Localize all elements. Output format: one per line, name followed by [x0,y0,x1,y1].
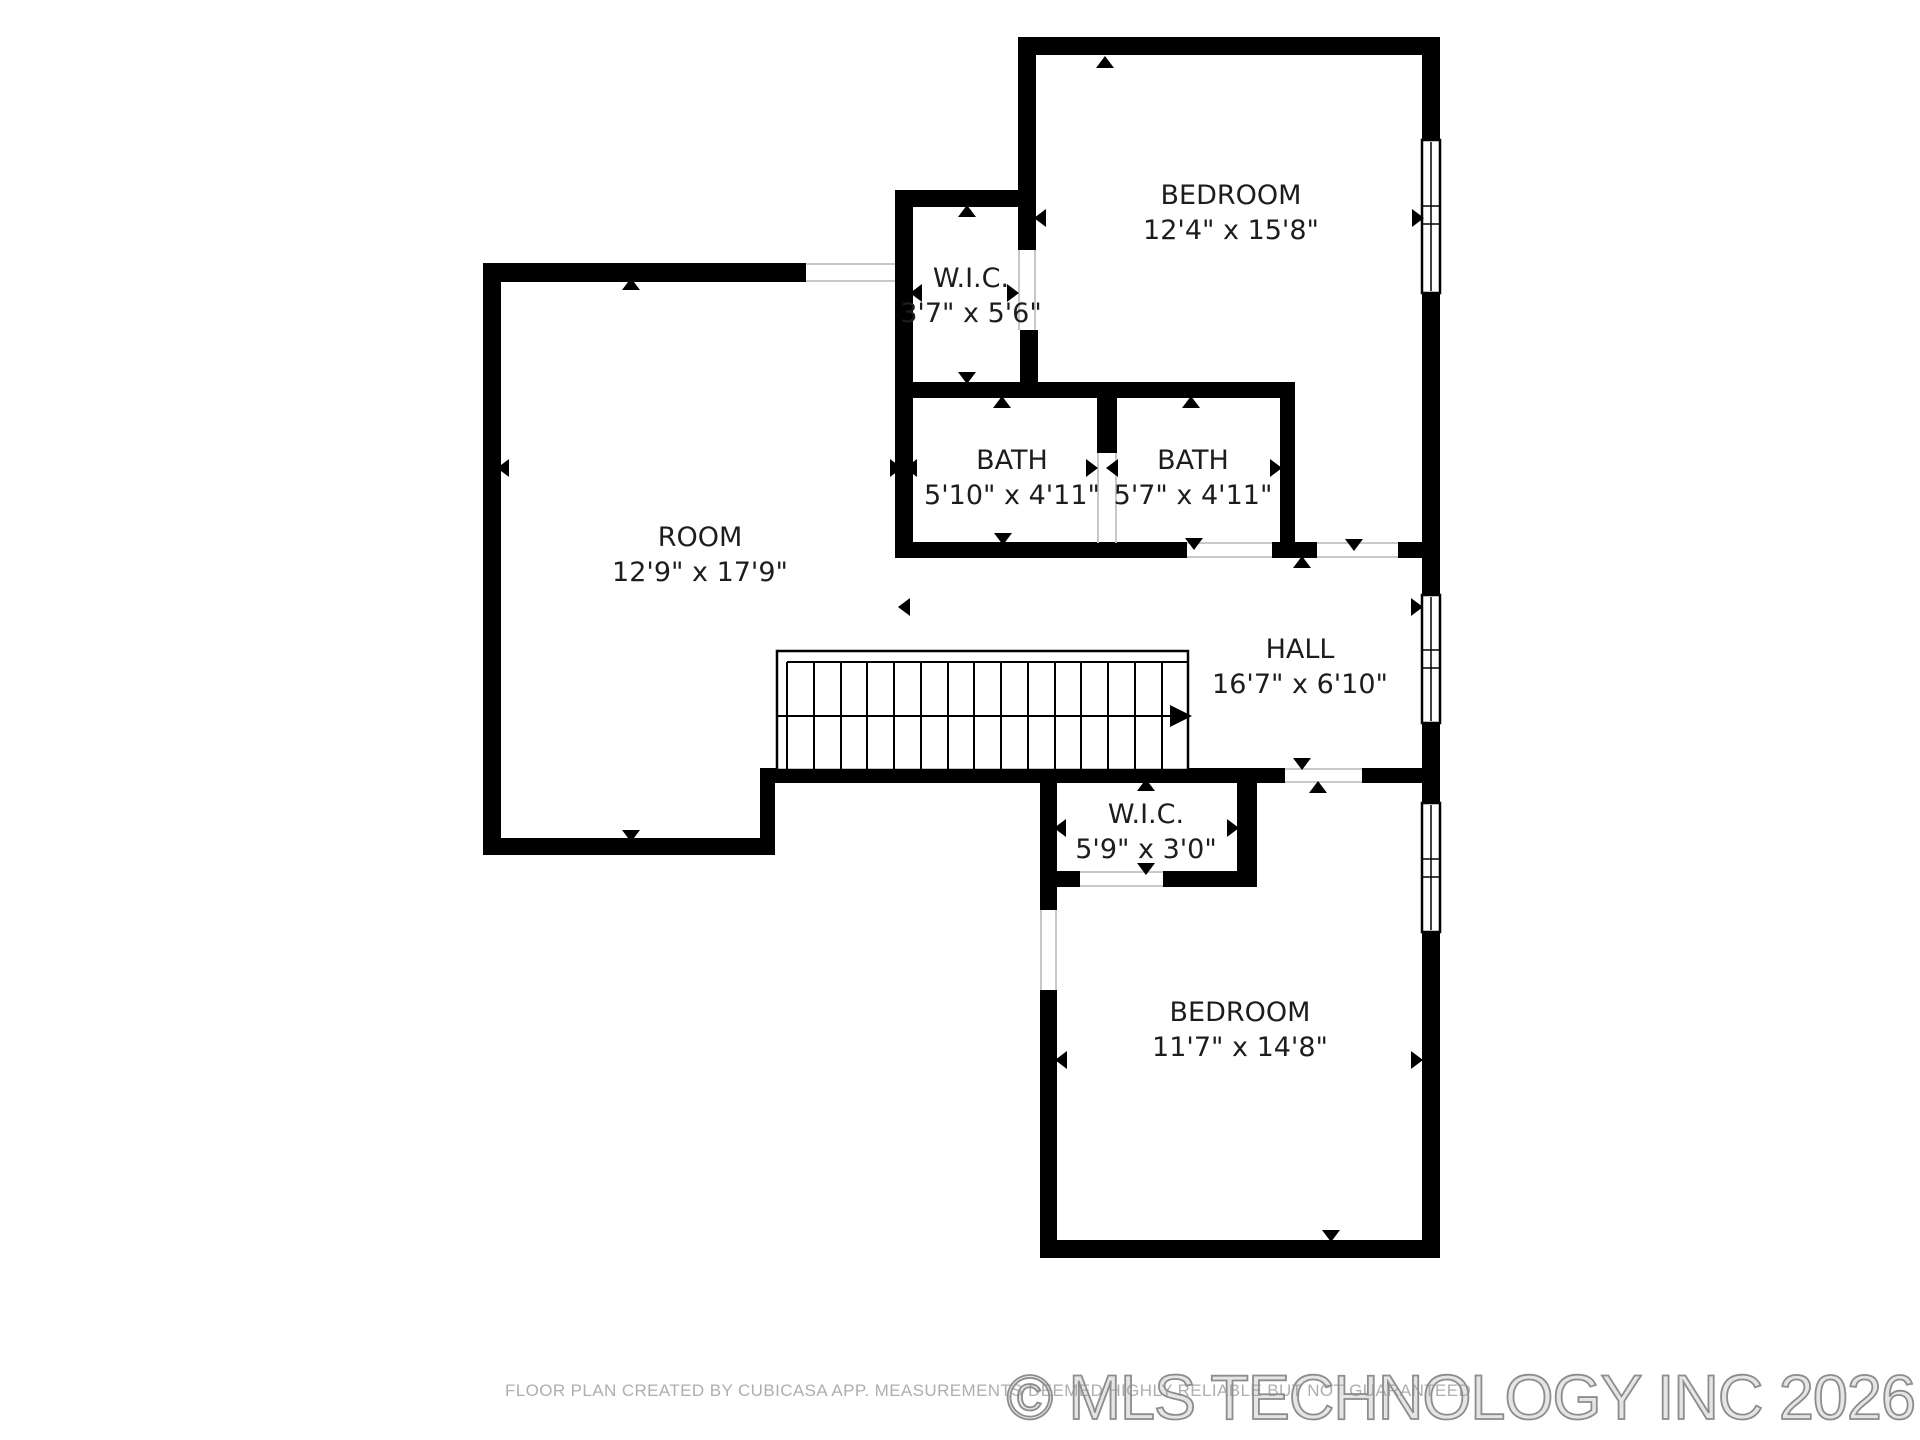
wall-wic-bottom-bottom-right [1163,871,1257,887]
room-name: HALL [1212,632,1388,667]
room-label-bedroom-bottom: BEDROOM 11'7" x 14'8" [1152,995,1328,1065]
door-openings [806,250,1398,990]
wall-room-bottom [483,838,775,855]
room-dims: 12'9" x 17'9" [612,555,788,590]
window-hall [1422,595,1440,723]
wall-bedroom-top-left-upper [1018,37,1036,250]
room-name: BATH [924,443,1100,478]
room-dims: 5'10" x 4'11" [924,478,1100,513]
room-dims: 12'4" x 15'8" [1143,213,1319,248]
room-label-wic-top: W.I.C. 3'7" x 5'6" [900,261,1042,331]
room-label-wic-bottom: W.I.C. 5'9" x 3'0" [1075,797,1217,867]
wall-bath-bottom-mid [1272,542,1317,558]
wall-bedroom-bottom-bottom [1040,1240,1440,1258]
room-name: BEDROOM [1152,995,1328,1030]
room-label-bath-right: BATH 5'7" x 4'11" [1114,443,1273,513]
room-dims: 5'7" x 4'11" [1114,478,1273,513]
room-name: BATH [1114,443,1273,478]
room-label-room: ROOM 12'9" x 17'9" [612,520,788,590]
room-dims: 16'7" x 6'10" [1212,667,1388,702]
room-label-bath-left: BATH 5'10" x 4'11" [924,443,1100,513]
wall-bedroom-top-bottom [1398,542,1440,558]
room-name: ROOM [612,520,788,555]
room-dims: 11'7" x 14'8" [1152,1030,1328,1065]
room-name: BEDROOM [1143,178,1319,213]
floor-plan-page: { "floorplan": { "rooms": [ {"id": "bedr… [0,0,1920,1440]
room-name: W.I.C. [1075,797,1217,832]
wall-wic-bottom-right [1237,768,1257,887]
wall-right-seg3 [1422,723,1440,803]
room-dims: 3'7" x 5'6" [900,296,1042,331]
wall-bath-right [1280,398,1295,558]
floor-plan-drawing [0,0,1920,1440]
stairs [777,651,1192,770]
wall-bedroom-bottom-left-upper [1040,768,1057,910]
room-name: W.I.C. [900,261,1042,296]
wall-bedroom-top-top [1018,37,1440,55]
room-label-hall: HALL 16'7" x 6'10" [1212,632,1388,702]
window-bedroom-top [1422,140,1440,293]
wall-room-top [483,263,806,282]
wall-wic-bottom-bottom-left [1040,871,1080,887]
wall-room-left [483,263,501,855]
wall-bath-top [895,382,1295,398]
wall-room-step [760,783,775,838]
room-label-bedroom-top: BEDROOM 12'4" x 15'8" [1143,178,1319,248]
wall-bedroom-bottom-left-lower [1040,990,1057,1258]
wall-bath-bottom-left [895,542,1187,558]
wall-right-seg4 [1422,932,1440,1258]
wall-right-seg1 [1422,37,1440,140]
wall-hall-bottom-right [1362,768,1440,783]
window-bedroom-bottom [1422,803,1440,932]
wall-wic-top-top [895,190,1036,207]
stairs-outline [777,651,1188,770]
wall-wic-bath-left [895,190,913,558]
watermark-text: © MLS TECHNOLOGY INC 2026 [1007,1362,1915,1434]
room-dims: 5'9" x 3'0" [1075,832,1217,867]
